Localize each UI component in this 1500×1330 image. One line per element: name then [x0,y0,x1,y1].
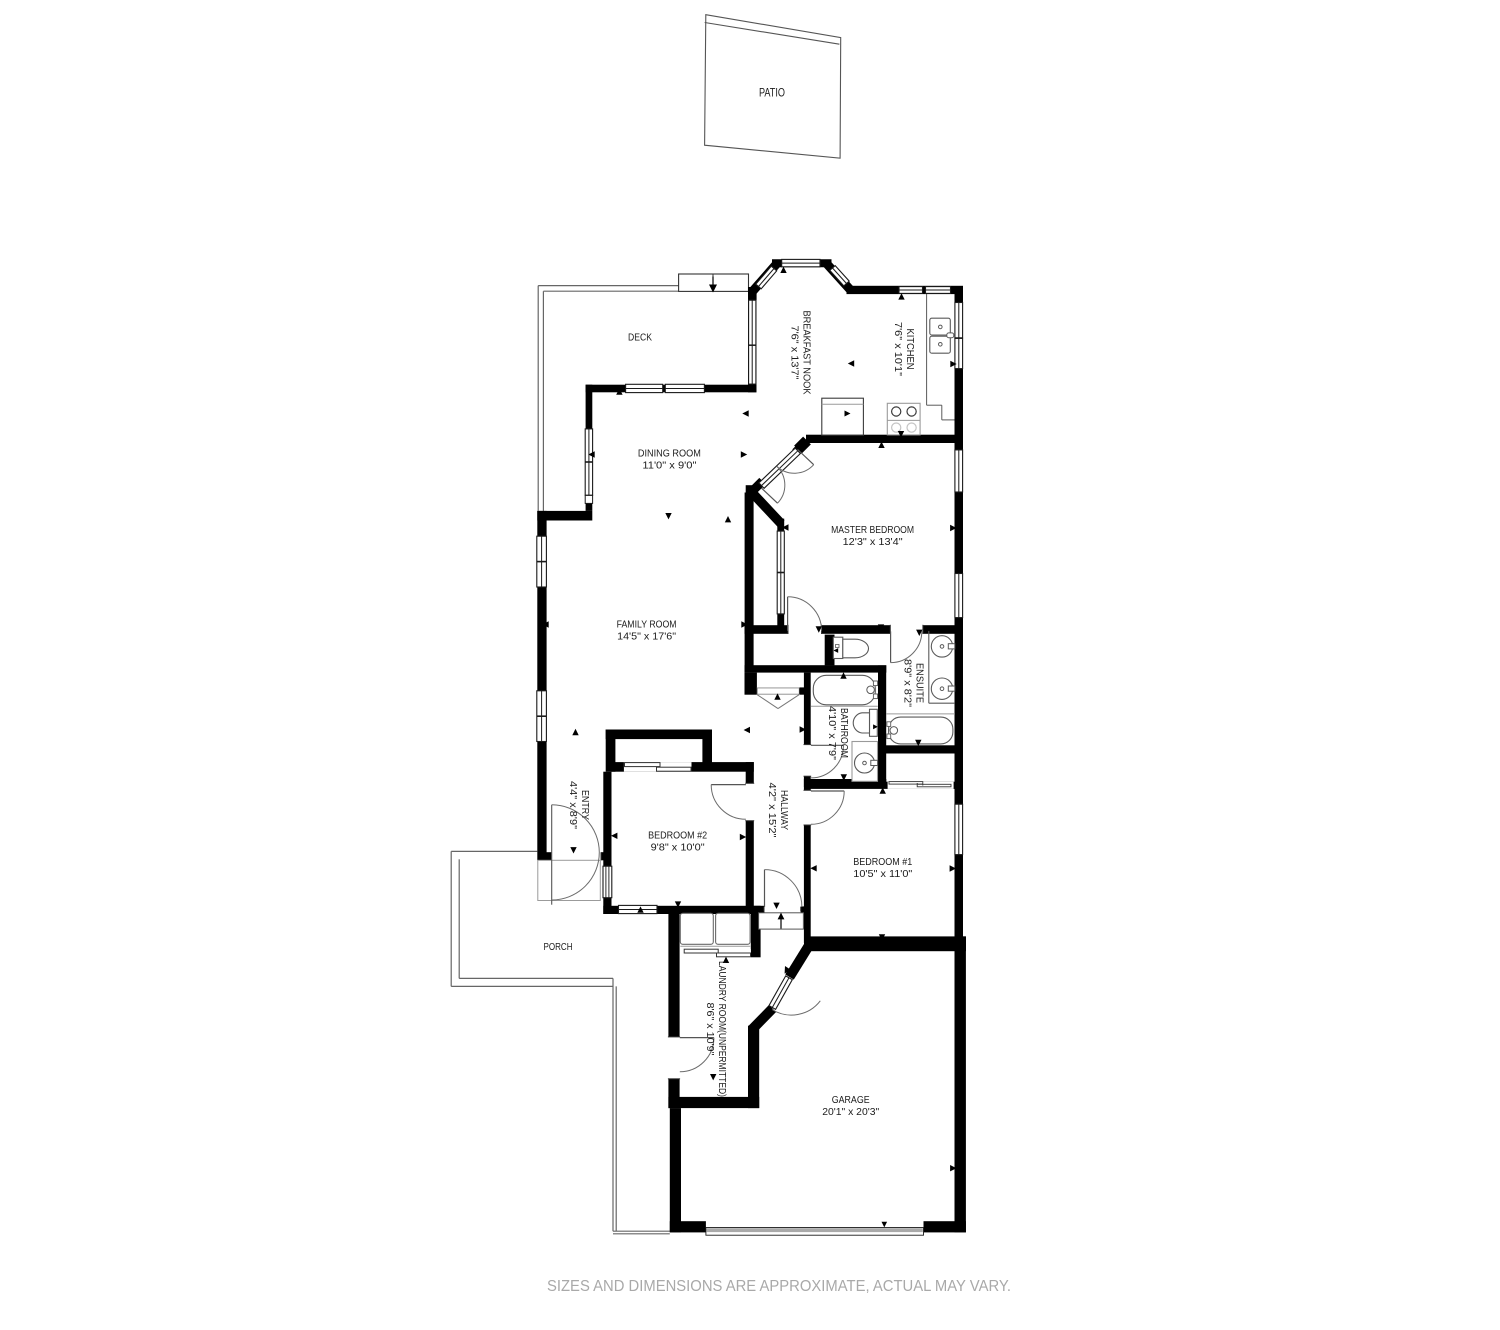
svg-text:4'4" x 8'9": 4'4" x 8'9" [567,781,579,829]
svg-text:BEDROOM #2: BEDROOM #2 [648,830,707,842]
svg-text:DECK: DECK [628,332,652,344]
svg-text:14'5" x 17'6": 14'5" x 17'6" [617,631,676,643]
svg-text:ENSUITE: ENSUITE [914,663,926,703]
svg-text:BEDROOM #1: BEDROOM #1 [853,856,912,868]
svg-text:10'5" x 11'0": 10'5" x 11'0" [853,868,912,880]
svg-text:PORCH: PORCH [544,941,573,953]
svg-text:8'6" x 10'9": 8'6" x 10'9" [704,1003,716,1056]
svg-text:HALLWAY: HALLWAY [778,790,790,830]
svg-text:8'9" x 8'2": 8'9" x 8'2" [902,659,914,707]
svg-text:9'8" x 10'0": 9'8" x 10'0" [651,842,705,854]
svg-text:ENTRY: ENTRY [579,790,591,820]
svg-text:FAMILY ROOM: FAMILY ROOM [617,619,677,631]
svg-text:11'0" x 9'0": 11'0" x 9'0" [642,459,696,471]
svg-text:GARAGE: GARAGE [832,1094,870,1106]
svg-text:MASTER BEDROOM: MASTER BEDROOM [831,524,914,536]
svg-text:20'1" x 20'3": 20'1" x 20'3" [822,1106,879,1118]
svg-text:7'6" x 10'1": 7'6" x 10'1" [892,322,904,376]
svg-text:DINING ROOM: DINING ROOM [638,447,701,459]
svg-text:KITCHEN: KITCHEN [904,329,916,370]
svg-text:12'3" x 13'4": 12'3" x 13'4" [843,536,903,548]
svg-text:BATHROOM: BATHROOM [838,708,850,758]
svg-text:PATIO: PATIO [759,88,785,100]
svg-text:SIZES AND DIMENSIONS ARE APPRO: SIZES AND DIMENSIONS ARE APPROXIMATE, AC… [547,1278,1011,1295]
svg-text:BREAKFAST NOOK: BREAKFAST NOOK [801,311,813,395]
svg-text:7'6" x 13'7": 7'6" x 13'7" [789,326,801,380]
svg-text:4'2" x 15'2": 4'2" x 15'2" [766,783,778,838]
svg-text:LAUNDRY ROOM(UNPERMITTED): LAUNDRY ROOM(UNPERMITTED) [716,961,728,1097]
svg-text:4'10" x 7'9": 4'10" x 7'9" [826,706,838,760]
